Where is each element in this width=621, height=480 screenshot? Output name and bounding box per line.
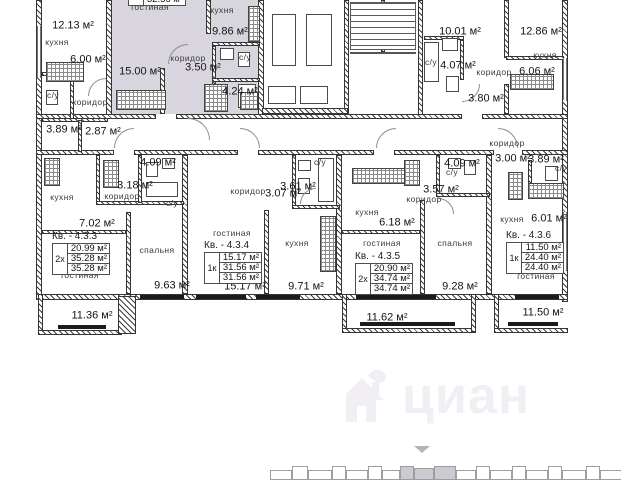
minimap-building-segment — [512, 466, 526, 480]
cian-watermark: циан — [338, 368, 530, 424]
wall-segment — [482, 114, 568, 119]
wall-segment — [486, 155, 492, 294]
minimap-building-segment — [562, 470, 586, 480]
area-label: 12.13 м² — [52, 21, 94, 32]
window-bar — [515, 295, 559, 299]
room-label: коридор — [476, 68, 511, 77]
area-label: 9.28 м² — [442, 282, 478, 293]
minimap-building-segment — [600, 470, 621, 480]
cian-logo-icon — [338, 368, 392, 424]
area-label: 9.63 м² — [154, 281, 190, 292]
room-label: с/у — [239, 53, 251, 62]
wall-segment — [494, 328, 568, 333]
wall-segment — [504, 84, 509, 114]
wall-segment — [38, 330, 122, 335]
minimap-building-segment — [490, 470, 512, 480]
minimap-building-segment — [382, 470, 400, 480]
room-label: спальня — [437, 239, 472, 248]
room-label: гостиная — [363, 239, 401, 248]
area-label: 4.07 м² — [440, 61, 476, 72]
room-label: кухня — [45, 38, 69, 47]
room-label: гостиная — [213, 229, 251, 238]
apt-4-3-6-rooms-code: 1к — [507, 243, 522, 273]
chevron-down-icon — [414, 446, 430, 453]
area-label: 7.02 м² — [79, 219, 115, 230]
fixture — [272, 14, 296, 66]
wall-segment — [118, 296, 136, 334]
appliance-block — [404, 160, 420, 186]
room-label: кухня — [533, 51, 557, 60]
area-label: 3.89 м² — [46, 125, 82, 136]
room-label: кухня — [355, 208, 379, 217]
area-label: 10.01 м² — [439, 27, 481, 38]
area-label: 3.00 м² — [495, 154, 531, 165]
apt-4-3-3-rooms-code: 2х — [53, 244, 68, 274]
room-label: коридор — [406, 195, 441, 204]
wall-segment — [494, 294, 499, 332]
wall-segment — [342, 230, 420, 234]
apt-4-3-6-title: Кв. - 4.3.6 — [506, 231, 551, 241]
floor-plan: 12.13 м²кухня6.00 м²с/укоридор3.89 м²2.8… — [0, 0, 621, 480]
apt-4-3-5-title: Кв. - 4.3.5 — [355, 252, 400, 262]
room-label: коридор — [489, 139, 524, 148]
fixture — [220, 48, 234, 60]
room-label: кухня — [50, 193, 74, 202]
room-label: кухня — [285, 239, 309, 248]
apt-4-3-4-rooms-code: 1к — [205, 253, 220, 283]
room-label: с/у — [555, 164, 567, 173]
wall-segment — [471, 294, 476, 332]
apt-4-3-4-table: 1к15.17 м²31.56 м²31.56 м² — [204, 252, 262, 284]
wall-segment — [42, 118, 108, 122]
apt-4-3-4-area-value: 31.56 м² — [220, 273, 261, 283]
appliance-block — [44, 158, 60, 186]
area-label: 9.71 м² — [288, 282, 324, 293]
window-bar — [356, 295, 436, 299]
area-label: 4.24 м² — [222, 87, 258, 98]
room-label: с/у — [166, 199, 178, 208]
area-label: 3.50 м² — [185, 63, 221, 74]
minimap-building-segment — [368, 466, 382, 480]
area-label: 6.00 м² — [70, 55, 106, 66]
window-bar — [140, 295, 184, 299]
apt-4-3-4-title: Кв. - 4.3.4 — [204, 241, 249, 251]
minimap-building-segment — [526, 470, 548, 480]
room-label: с/у — [446, 168, 458, 177]
appliance-block — [320, 216, 336, 272]
door-arc — [376, 128, 396, 148]
room-label: с/у — [425, 58, 437, 67]
fixture — [298, 160, 311, 171]
wall-segment — [342, 294, 347, 332]
room-label: спальня — [139, 246, 174, 255]
minimap-building-segment — [346, 470, 368, 480]
fixture — [442, 38, 458, 51]
window-bar — [196, 295, 246, 299]
wall-segment — [418, 0, 423, 116]
area-label: 12.86 м² — [520, 27, 562, 38]
apt-4-3-top-partial-rooms-code — [129, 0, 144, 5]
area-label: 6.01 м² — [531, 214, 567, 225]
room-label: кухня — [210, 6, 234, 15]
apt-4-3-top-partial-area-value: 32.56 м² — [144, 0, 185, 5]
apt-4-3-6-area-value: 24.40 м² — [522, 263, 563, 273]
area-label: 6.06 м² — [519, 67, 555, 78]
wall-segment — [420, 200, 425, 294]
minimap-building-segment — [476, 466, 490, 480]
wall-segment — [336, 155, 342, 294]
minimap-building-segment — [400, 466, 414, 480]
door-arc — [188, 118, 210, 140]
wall-segment — [342, 328, 476, 333]
fixture — [268, 86, 296, 104]
wall-segment — [504, 0, 509, 58]
minimap-building-segment — [586, 466, 600, 480]
area-label: 2.87 м² — [85, 127, 121, 138]
apt-4-3-3-title: Кв. - 4.3.3 — [52, 232, 97, 242]
wall-segment — [292, 205, 340, 209]
area-label: 11.50 м² — [523, 308, 564, 319]
apt-4-3-top-partial-table: 32.56 м² — [128, 0, 186, 6]
room-label: коридор — [104, 192, 139, 201]
window — [37, 26, 41, 78]
apt-4-3-3-table: 2х20.99 м²35.28 м²35.28 м² — [52, 243, 110, 275]
wall-segment — [38, 294, 43, 334]
minimap-building-segment — [270, 470, 292, 480]
minimap-building-segment — [456, 470, 476, 480]
staircase — [350, 2, 416, 50]
room-label: коридор — [230, 187, 265, 196]
area-label: 9.86 м² — [212, 27, 248, 38]
window-bar — [256, 295, 300, 299]
area-label: 6.18 м² — [379, 218, 415, 229]
wall-segment — [36, 294, 568, 300]
wall-segment — [212, 78, 260, 82]
fixture — [300, 86, 328, 104]
stair-landing-line — [350, 52, 416, 54]
wall-segment — [96, 155, 100, 205]
window-bar — [58, 325, 106, 329]
area-label: 15.00 м² — [119, 67, 161, 78]
fixture — [306, 14, 332, 66]
apt-4-3-5-area-value: 34.74 м² — [371, 284, 412, 294]
fixture — [446, 76, 459, 92]
door-arc — [240, 128, 260, 148]
wall-segment — [126, 212, 131, 294]
minimap-building-segment — [434, 466, 456, 480]
wall-segment — [344, 0, 349, 116]
minimap-building-segment — [292, 466, 308, 480]
wall-segment — [176, 114, 462, 119]
minimap-building-segment — [548, 466, 562, 480]
area-label: 11.36 м² — [72, 311, 113, 322]
door-arc — [88, 78, 106, 96]
minimap-building-segment — [308, 470, 332, 480]
window-bar — [508, 322, 558, 326]
watermark-text: циан — [402, 370, 530, 422]
wall-segment — [212, 42, 260, 46]
appliance-block — [528, 183, 564, 199]
apt-4-3-5-rooms-code: 2х — [356, 264, 371, 294]
wall-segment — [394, 150, 494, 155]
appliance-block — [116, 90, 166, 110]
apt-4-3-6-table: 1к11.50 м²24.40 м²24.40 м² — [506, 242, 564, 274]
minimap-building-segment — [414, 468, 434, 480]
wall-segment — [36, 150, 114, 155]
apt-4-3-3-area-value: 35.28 м² — [68, 264, 109, 274]
area-label: 11.62 м² — [367, 313, 408, 324]
room-label: с/у — [47, 91, 59, 100]
minimap-building-segment — [332, 466, 346, 480]
wall-segment — [258, 150, 374, 155]
room-label: кухня — [500, 215, 524, 224]
room-label: с/у — [314, 158, 326, 167]
window — [563, 58, 567, 100]
appliance-block — [248, 6, 260, 42]
area-label: 3.61 м² — [280, 182, 316, 193]
appliance-block — [508, 172, 523, 200]
area-label: 4.09 м² — [140, 158, 176, 169]
room-label: коридор — [72, 98, 107, 107]
apt-4-3-5-table: 2х20.90 м²34.74 м²34.74 м² — [355, 263, 413, 295]
area-label: 3.80 м² — [468, 94, 504, 105]
wall-segment — [182, 155, 188, 294]
